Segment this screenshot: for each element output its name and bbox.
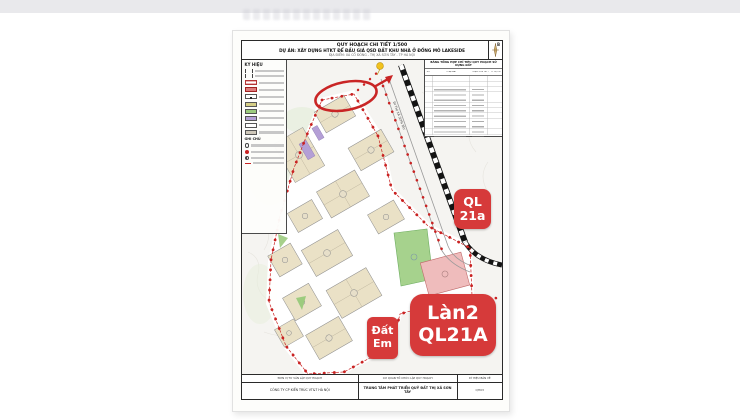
badge-ql21a-line1: QL xyxy=(454,195,491,209)
listing-screenshot: QUY HOẠCH CHI TIẾT 1/500 DỰ ÁN: XÂY DỰNG… xyxy=(0,0,740,420)
badge-lan2-line2: QL21A xyxy=(410,325,496,347)
legend-title: KÝ HIỆU xyxy=(245,62,284,67)
badge-ql21a-line2: 21a xyxy=(454,209,491,223)
badge-dat-em-line2: Em xyxy=(367,338,398,351)
watermark xyxy=(243,9,373,20)
col-ratio: TỶ LỆ (%) xyxy=(490,71,502,73)
table-text-bars xyxy=(434,89,466,137)
swatch-red-land xyxy=(245,87,257,92)
legend-item xyxy=(245,80,284,85)
consultant-column: ĐƠN VỊ TƯ VẤN LẬP QUY HOẠCH CÔNG TY CP K… xyxy=(242,375,359,399)
swatch-purple-land xyxy=(245,116,257,121)
note-item xyxy=(245,150,284,155)
legend-notes-title: GHI CHÚ xyxy=(245,137,284,141)
authority-header: CƠ QUAN TỔ CHỨC LẬP QUY HOẠCH xyxy=(359,375,457,383)
compass-rose: B xyxy=(488,41,502,59)
legend-item xyxy=(245,109,284,114)
note-item xyxy=(245,162,284,164)
consultant-header: ĐƠN VỊ TƯ VẤN LẬP QUY HOẠCH xyxy=(242,375,358,383)
legend-boundary-item xyxy=(245,74,284,78)
table-number-bars xyxy=(472,89,484,137)
legend-item xyxy=(245,94,284,99)
legend-item xyxy=(245,123,284,128)
col-stt: STT xyxy=(425,71,432,73)
badge-lan2-line1: Làn2 xyxy=(410,303,496,325)
compass-needle-icon xyxy=(489,41,502,59)
boundary-dot-icon xyxy=(245,150,250,155)
swatch-yellow-land xyxy=(245,102,257,107)
note-item xyxy=(245,143,284,148)
badge-ql21a: QL 21a xyxy=(454,189,491,229)
col-land-type: LOẠI ĐẤT xyxy=(432,71,471,73)
swatch-gray-land xyxy=(245,130,257,135)
table-title: BẢNG TỔNG HỢP CHỈ TIÊU QUY HOẠCH SỬ DỤNG… xyxy=(425,60,502,69)
boundary-line-icon xyxy=(245,163,251,164)
consultant-name: CÔNG TY CP KIẾN TRÚC VT&T HÀ NỘI xyxy=(242,383,358,399)
manhole-icon xyxy=(245,143,250,148)
drawing-code-header: KÝ HIỆU BẢN VẼ xyxy=(458,375,502,383)
legend-boundary-item xyxy=(245,69,284,73)
swatch-marker-land xyxy=(245,94,257,99)
project-location: ĐỊA ĐIỂM: XÃ CỔ ĐÔNG - THỊ XÃ SƠN TÂY - … xyxy=(242,53,502,57)
note-item xyxy=(245,156,284,161)
drawing-code-value: QH03 xyxy=(458,383,502,399)
title-block: QUY HOẠCH CHI TIẾT 1/500 DỰ ÁN: XÂY DỰNG… xyxy=(242,41,502,60)
legend-item xyxy=(245,130,284,135)
footer-title-block: ĐƠN VỊ TƯ VẤN LẬP QUY HOẠCH CÔNG TY CP K… xyxy=(242,374,502,399)
legend-item xyxy=(245,116,284,121)
survey-point-icon xyxy=(245,156,250,161)
badge-lan2-ql21a: Làn2 QL21A xyxy=(410,294,496,356)
legend-item xyxy=(245,102,284,107)
swatch-white-land xyxy=(245,123,257,128)
drawing-code-column: KÝ HIỆU BẢN VẼ QH03 xyxy=(458,375,502,399)
north-label: B xyxy=(497,42,500,47)
legend-panel: KÝ HIỆU GHI CHÚ xyxy=(242,60,287,234)
swatch-green-land xyxy=(245,109,257,114)
authority-column: CƠ QUAN TỔ CHỨC LẬP QUY HOẠCH TRUNG TÂM … xyxy=(359,375,458,399)
boundary-symbol-icon xyxy=(245,69,253,73)
badge-dat-em: Đất Em xyxy=(367,317,398,359)
legend-item xyxy=(245,87,284,92)
land-use-summary-table: BẢNG TỔNG HỢP CHỈ TIÊU QUY HOẠCH SỬ DỤNG… xyxy=(424,60,502,137)
col-area: DIỆN TÍCH (m²) xyxy=(471,71,490,73)
table-header-row: STT LOẠI ĐẤT DIỆN TÍCH (m²) TỶ LỆ (%) xyxy=(425,69,502,76)
swatch-lot-land xyxy=(245,80,257,85)
boundary-symbol-icon xyxy=(245,74,253,78)
authority-name: TRUNG TÂM PHÁT TRIỂN QUỸ ĐẤT THỊ XÃ SƠN … xyxy=(359,383,457,399)
